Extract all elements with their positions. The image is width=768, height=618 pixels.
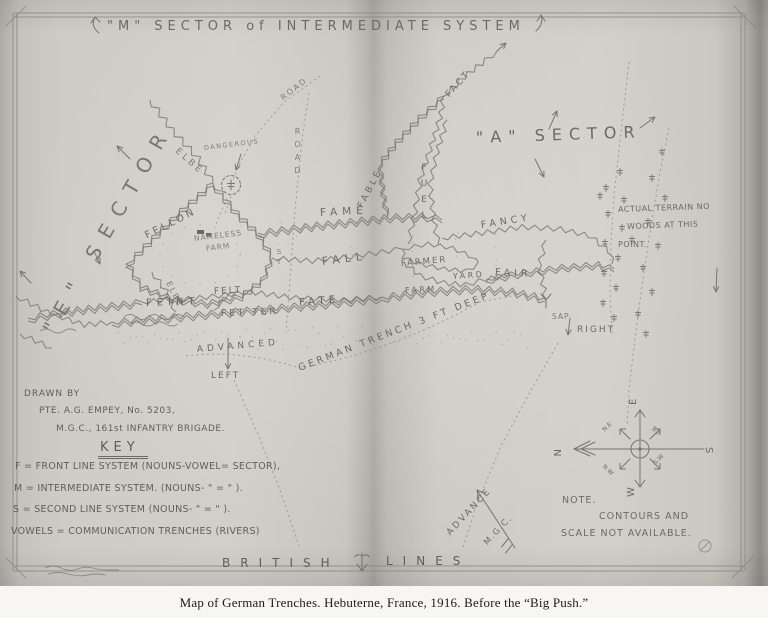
label-fuel: FUEL — [419, 163, 428, 227]
trench-map-photo: "M" SECTOR of INTERMEDIATE SYSTEM "E" SE… — [0, 0, 768, 586]
compass-e: E — [629, 399, 639, 405]
key-title: KEY — [98, 441, 148, 459]
compass-w: W — [627, 487, 637, 497]
label-felt: FELT, — [214, 286, 247, 297]
book-page: "M" SECTOR of INTERMEDIATE SYSTEM "E" SE… — [0, 0, 768, 618]
compass-s: S — [703, 447, 713, 453]
label-feint: FEINT — [146, 297, 200, 309]
sap-symbol — [541, 294, 551, 308]
drawn-by-line1: DRAWN BY — [24, 390, 80, 399]
key-line-2: M = INTERMEDIATE SYSTEM. (NOUNS- " = " )… — [14, 484, 243, 494]
label-sap: SAP — [552, 313, 570, 321]
label-left: LEFT — [211, 372, 240, 381]
note-line2: CONTOURS AND — [599, 512, 689, 522]
label-st: ST — [275, 248, 282, 268]
terrain-note-line3: POINT. — [618, 241, 647, 249]
map-drawing — [0, 0, 768, 586]
british-lines-arrow — [355, 553, 369, 571]
caption-text: Map of German Trenches. Hebuterne, Franc… — [0, 595, 768, 611]
map-title: "M" SECTOR of INTERMEDIATE SYSTEM — [107, 20, 525, 33]
key-line-4: VOWELS = COMMUNICATION TRENCHES (RIVERS) — [11, 527, 260, 537]
label-fair: FAIR — [495, 268, 532, 279]
compass-rose — [574, 410, 704, 487]
drawn-by-line2: PTE. A.G. EMPEY, No. 5203, — [39, 407, 175, 416]
compass-n: N — [551, 449, 561, 456]
key-line-3: S = SECOND LINE SYSTEM (NOUNS- " = " ). — [13, 505, 231, 515]
drawn-by-line3: M.G.C., 161st INFANTRY BRIGADE. — [56, 425, 225, 434]
title-arrow-left — [91, 17, 100, 33]
caption-area: Map of German Trenches. Hebuterne, Franc… — [0, 586, 768, 618]
dangerous-crossroads-marker — [222, 176, 241, 195]
label-farm: FARM — [405, 285, 437, 295]
label-road-vertical: ROAD — [293, 127, 301, 179]
label-lines: LINES — [386, 555, 470, 567]
key-line-1: F = FRONT LINE SYSTEM (NOUNS-VOWEL= SECT… — [15, 462, 280, 472]
label-british: BRITISH — [222, 557, 340, 569]
note-line1: NOTE. — [562, 496, 596, 506]
label-right: RIGHT — [577, 326, 615, 335]
note-line3: SCALE NOT AVAILABLE. — [561, 529, 692, 539]
